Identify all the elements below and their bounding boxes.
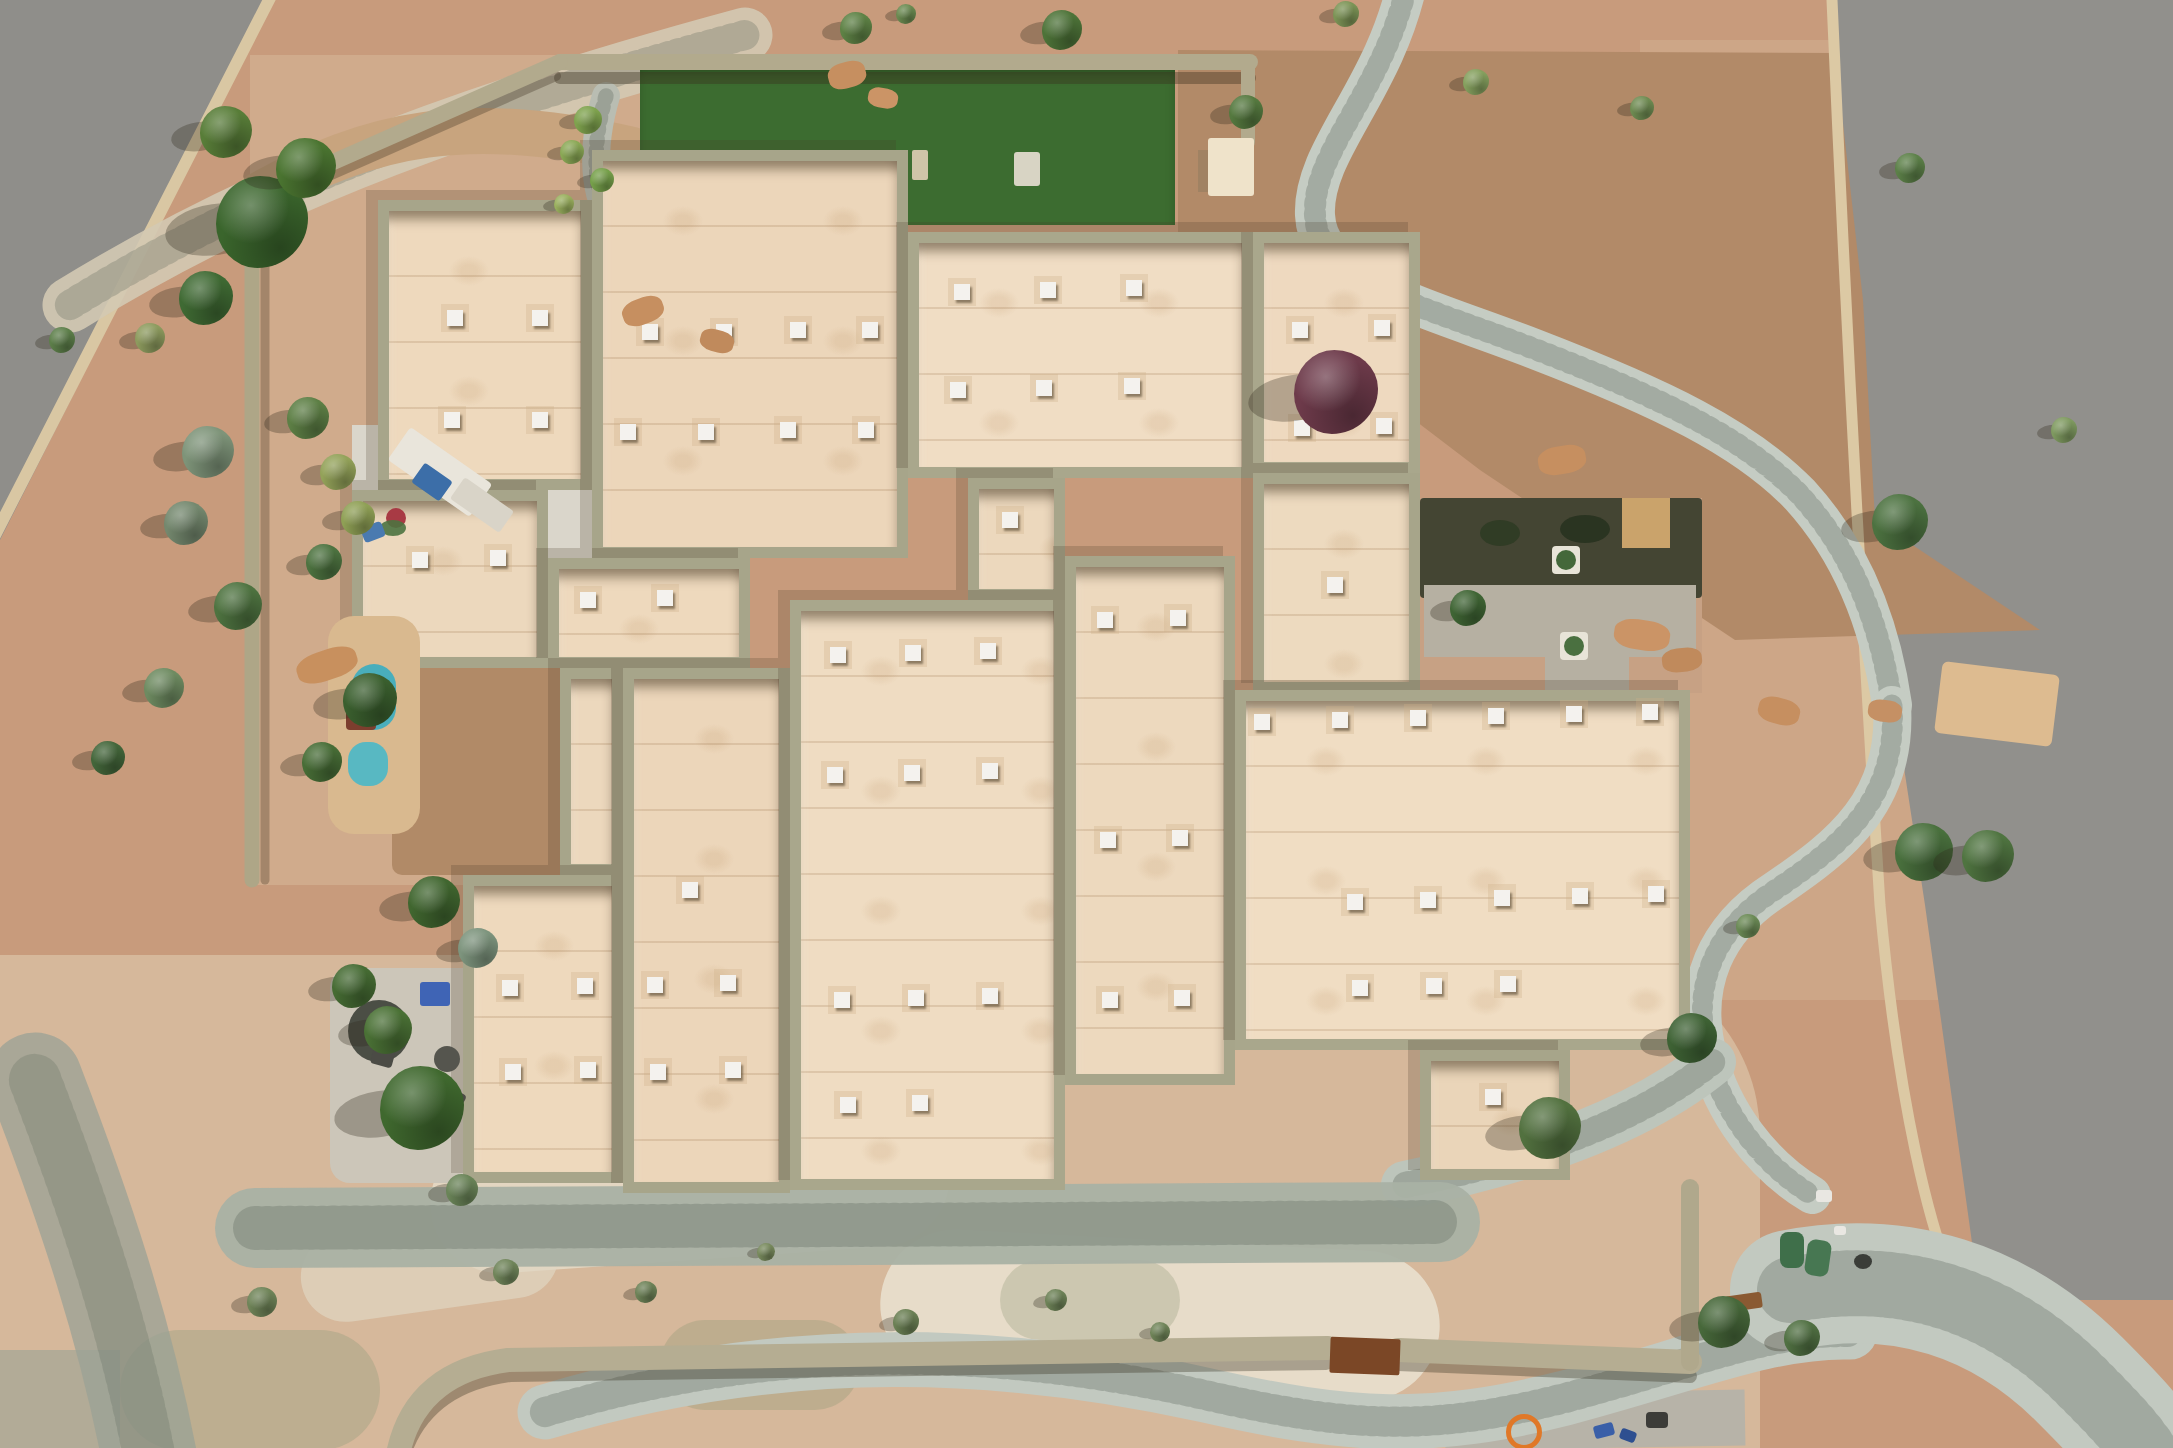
- tree-32: [1333, 1, 1359, 27]
- tree-37: [1872, 494, 1928, 550]
- tree-4: [179, 271, 233, 325]
- tree-51: [1045, 1289, 1067, 1311]
- tree-24: [574, 106, 602, 134]
- tree-35: [1895, 153, 1925, 183]
- tree-23: [446, 1174, 478, 1206]
- tree-7: [182, 426, 234, 478]
- tree-13: [320, 454, 356, 490]
- tree-50: [893, 1309, 919, 1335]
- tree-31: [896, 4, 916, 24]
- tree-48: [493, 1259, 519, 1285]
- tree-3: [200, 106, 252, 158]
- tree-52: [757, 1243, 775, 1261]
- tree-14: [341, 501, 375, 535]
- tree-22: [364, 1006, 412, 1054]
- tree-19: [458, 928, 498, 968]
- tree-12: [287, 397, 329, 439]
- tree-15: [306, 544, 342, 580]
- tree-26: [590, 168, 614, 192]
- tree-5: [135, 323, 165, 353]
- tree-6: [49, 327, 75, 353]
- tree-25: [560, 140, 584, 164]
- tree-20: [332, 964, 376, 1008]
- tree-44: [1736, 914, 1760, 938]
- tree-28: [840, 12, 872, 44]
- tree-30: [1229, 95, 1263, 129]
- tree-11: [91, 741, 125, 775]
- tree-8: [164, 501, 208, 545]
- tree-43: [1784, 1320, 1820, 1356]
- tree-45: [2051, 417, 2077, 443]
- tree-46: [1450, 590, 1486, 626]
- tree-40: [1667, 1013, 1717, 1063]
- tree-53: [1150, 1322, 1170, 1342]
- tree-10: [144, 668, 184, 708]
- tree-2: [276, 138, 336, 198]
- tree-16: [343, 673, 397, 727]
- tree-9: [214, 582, 262, 630]
- tree-39: [1962, 830, 2014, 882]
- tree-18: [408, 876, 460, 928]
- tree-33: [1463, 69, 1489, 95]
- tree-36: [1294, 350, 1378, 434]
- tree-42: [1698, 1296, 1750, 1348]
- tree-29: [1042, 10, 1082, 50]
- tree-41: [1519, 1097, 1581, 1159]
- aerial-photo: [0, 0, 2173, 1448]
- tree-49: [635, 1281, 657, 1303]
- tree-34: [1630, 96, 1654, 120]
- vegetation-layer: [0, 0, 2173, 1448]
- tree-47: [247, 1287, 277, 1317]
- tree-17: [302, 742, 342, 782]
- tree-27: [554, 194, 574, 214]
- tree-21: [380, 1066, 464, 1150]
